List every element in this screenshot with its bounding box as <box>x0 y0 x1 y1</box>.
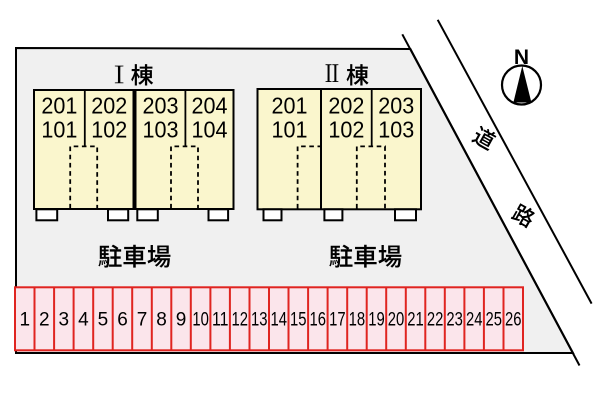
svg-text:203: 203 <box>378 93 414 119</box>
svg-text:22: 22 <box>427 310 444 331</box>
svg-text:102: 102 <box>328 117 364 143</box>
svg-text:14: 14 <box>271 310 288 331</box>
svg-text:9: 9 <box>176 310 187 331</box>
svg-text:21: 21 <box>407 310 424 331</box>
svg-text:N: N <box>514 46 529 69</box>
svg-text:202: 202 <box>91 93 127 119</box>
svg-text:103: 103 <box>378 117 414 143</box>
svg-text:2: 2 <box>39 310 50 331</box>
svg-text:18: 18 <box>349 310 366 331</box>
svg-text:204: 204 <box>192 93 228 119</box>
svg-text:16: 16 <box>310 310 327 331</box>
svg-text:26: 26 <box>505 310 522 331</box>
svg-text:12: 12 <box>231 310 248 331</box>
svg-text:4: 4 <box>78 310 89 331</box>
svg-text:8: 8 <box>156 310 167 331</box>
svg-text:5: 5 <box>98 310 109 331</box>
svg-text:202: 202 <box>328 93 364 119</box>
svg-text:24: 24 <box>466 310 483 331</box>
svg-text:25: 25 <box>485 310 502 331</box>
svg-text:23: 23 <box>446 310 463 331</box>
svg-text:104: 104 <box>192 117 228 143</box>
svg-text:101: 101 <box>272 117 308 143</box>
svg-text:103: 103 <box>143 117 179 143</box>
svg-text:20: 20 <box>388 310 405 331</box>
svg-text:3: 3 <box>59 310 70 331</box>
svg-text:201: 201 <box>272 93 308 119</box>
svg-text:15: 15 <box>290 310 307 331</box>
svg-text:7: 7 <box>137 310 148 331</box>
svg-text:102: 102 <box>91 117 127 143</box>
svg-text:1: 1 <box>20 310 31 331</box>
svg-text:11: 11 <box>212 310 229 331</box>
svg-text:6: 6 <box>117 310 128 331</box>
svg-text:19: 19 <box>368 310 385 331</box>
svg-text:17: 17 <box>329 310 346 331</box>
svg-text:201: 201 <box>41 93 77 119</box>
svg-text:10: 10 <box>192 310 209 331</box>
svg-text:13: 13 <box>251 310 268 331</box>
svg-text:203: 203 <box>143 93 179 119</box>
svg-text:101: 101 <box>41 117 77 143</box>
